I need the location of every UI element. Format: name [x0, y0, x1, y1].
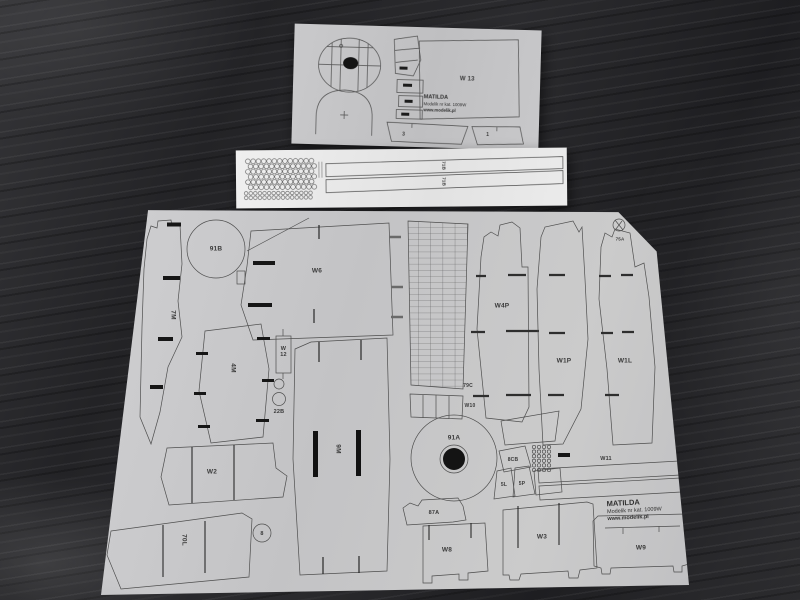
bottom-trapezoid-parts	[386, 122, 524, 146]
part-label-w12: W 12	[278, 346, 290, 358]
part-w3-outline	[503, 502, 597, 580]
part-label-w10: W10	[465, 403, 476, 409]
part-label-9m: 9M	[335, 444, 342, 453]
brand-block-main: MATILDA Modelik nr kat. 1009W www.modeli…	[606, 495, 691, 523]
part-label-7m: 7M	[170, 310, 177, 319]
part-label-w3: W3	[537, 534, 547, 541]
part-75a-washer	[613, 219, 625, 231]
part-w1l-outline	[599, 229, 655, 445]
part-label-w13: W 13	[460, 76, 475, 82]
part-label-87a: 87A	[429, 510, 440, 516]
part-9m-outline	[293, 338, 390, 575]
part-diagonal-bracket	[501, 411, 559, 445]
part-label-4m: 4M	[230, 363, 237, 372]
part-w1p-outline	[537, 221, 588, 445]
part-label-w1p: W1P	[557, 358, 572, 365]
rivet-ring-grid	[244, 158, 322, 199]
part-label-w1l: W1L	[618, 358, 632, 365]
part-label-79c: 79C	[463, 383, 473, 389]
part-w6-outline	[241, 223, 403, 340]
rivet-dot-grid	[532, 445, 550, 471]
part-label-w6: W6	[312, 268, 322, 275]
part-label-91b: 91B	[210, 246, 223, 253]
main-sheet-cut-lines	[101, 209, 689, 595]
turret-ring-part	[318, 32, 382, 98]
brand-block-small: MATILDA Modelik nr kat. 1009W www.modeli…	[423, 94, 493, 114]
part-79c-track-grid	[408, 221, 468, 389]
part-label-3: 3	[402, 132, 405, 138]
part-4m-outline	[194, 324, 274, 443]
part-7m-outline	[140, 220, 182, 444]
part-label-5l: 5L	[501, 482, 507, 488]
part-label-w2: W2	[207, 469, 217, 476]
part-91a-wheel	[411, 415, 497, 501]
part-label-w11: W11	[600, 456, 612, 462]
part-label-8cb: 8CB	[508, 457, 519, 463]
cardboard-sheet-small: W 13 3 1 MATILDA Modelik nr kat. 1009W w…	[291, 24, 541, 151]
cardboard-sheet-strips: 71B 71B	[236, 148, 567, 209]
part-label-91a: 91A	[448, 435, 461, 442]
small-sheet-cut-lines	[291, 24, 541, 151]
part-label-22b: 22B	[274, 409, 285, 415]
part-w4p-outline	[471, 222, 539, 422]
part-w8-outline	[423, 523, 488, 583]
part-22b-circles	[273, 379, 286, 406]
part-label-1: 1	[486, 132, 489, 138]
part-91b-circle	[187, 218, 309, 284]
strip-sheet-cut-lines	[236, 148, 567, 209]
photo-stage: W 13 3 1 MATILDA Modelik nr kat. 1009W w…	[0, 0, 800, 600]
part-label-70l: 70L	[181, 534, 188, 546]
part-label-w9: W9	[636, 545, 646, 552]
part-label-75a: 75A	[616, 237, 625, 242]
part-label-71b-top: 71B	[441, 161, 446, 170]
part-label-5p: 5P	[519, 481, 526, 487]
part-w2-outline	[161, 443, 287, 505]
cardboard-sheet-main: 91B 7M W6 4M W 12 22B 9M W2 70L 8 79C W1…	[101, 209, 689, 595]
part-label-w4p: W4P	[495, 303, 510, 310]
part-70l-outline	[107, 513, 252, 589]
part-label-w8: W8	[442, 547, 452, 554]
part-label-8: 8	[260, 531, 263, 537]
part-label-71b-bottom: 71B	[441, 177, 446, 186]
dome-part	[316, 89, 373, 136]
